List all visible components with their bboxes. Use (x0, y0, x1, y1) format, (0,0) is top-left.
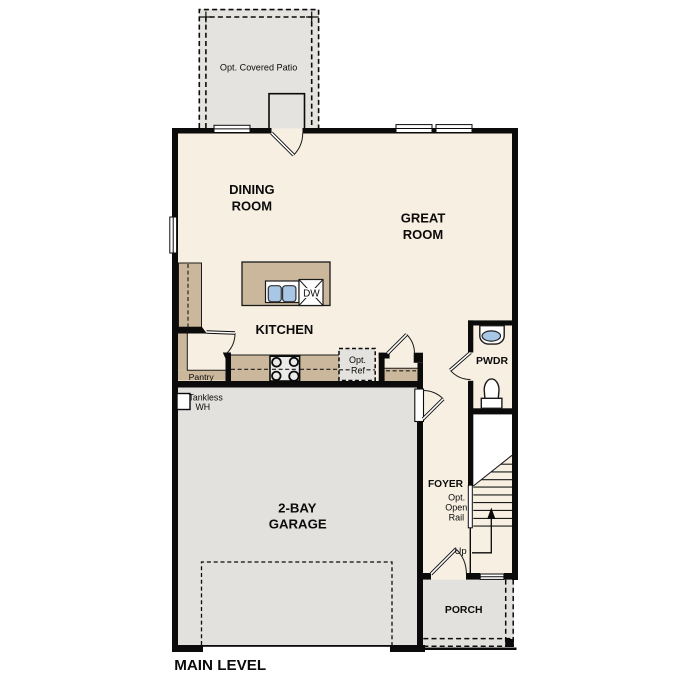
svg-text:ROOM: ROOM (232, 198, 272, 213)
svg-text:KITCHEN: KITCHEN (256, 322, 314, 337)
svg-text:PWDR: PWDR (476, 355, 508, 367)
svg-text:GARAGE: GARAGE (269, 516, 327, 531)
svg-text:MAIN LEVEL: MAIN LEVEL (174, 657, 266, 674)
svg-text:2-BAY: 2-BAY (278, 501, 317, 516)
svg-text:ROOM: ROOM (403, 227, 443, 242)
svg-text:GREAT: GREAT (401, 211, 446, 226)
svg-text:Rail: Rail (449, 512, 465, 522)
svg-text:Open: Open (445, 503, 467, 513)
svg-text:Opt.: Opt. (448, 493, 465, 503)
svg-text:Opt.: Opt. (349, 355, 366, 365)
svg-text:PORCH: PORCH (445, 605, 483, 616)
svg-text:Opt. Covered Patio: Opt. Covered Patio (220, 62, 297, 72)
svg-text:Tankless: Tankless (189, 392, 224, 402)
svg-text:Pantry: Pantry (189, 372, 215, 382)
svg-text:FOYER: FOYER (428, 479, 464, 490)
svg-text:Up: Up (455, 546, 467, 557)
svg-text:DW: DW (303, 289, 320, 300)
svg-text:DINING: DINING (229, 182, 275, 197)
svg-text:WH: WH (196, 402, 211, 412)
svg-text:Ref: Ref (351, 365, 366, 375)
